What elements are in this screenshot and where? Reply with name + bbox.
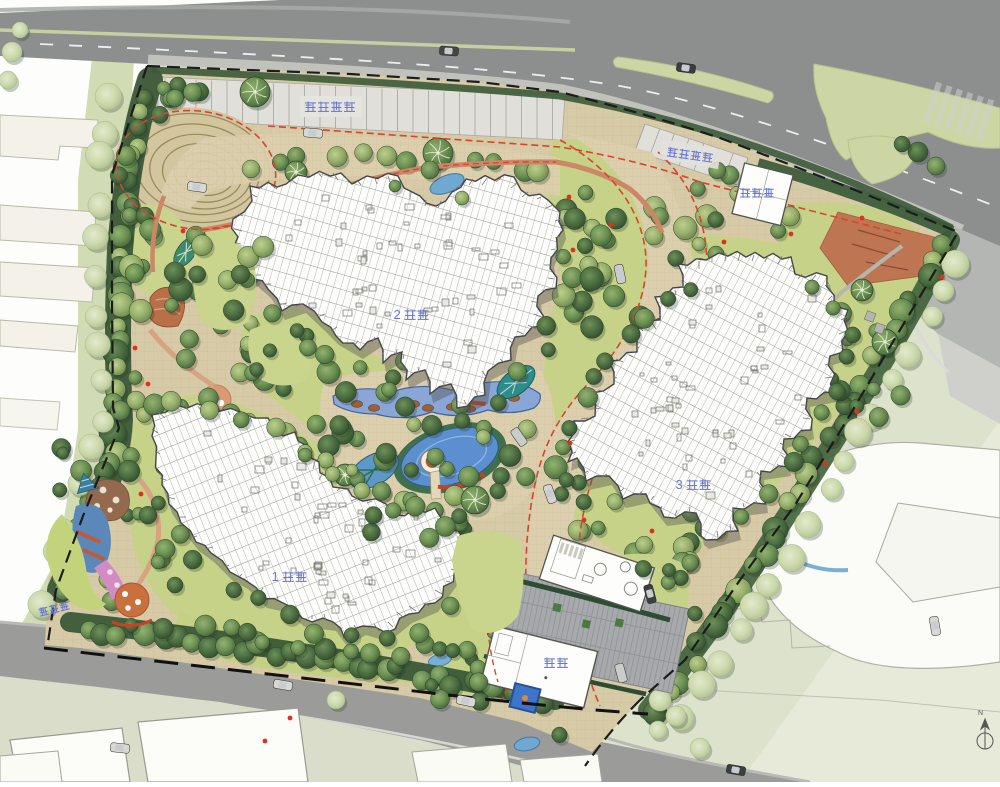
svg-text:1: 1	[272, 569, 279, 584]
svg-text:2: 2	[394, 307, 401, 322]
svg-text:3: 3	[676, 477, 683, 492]
svg-text:N: N	[978, 710, 983, 717]
